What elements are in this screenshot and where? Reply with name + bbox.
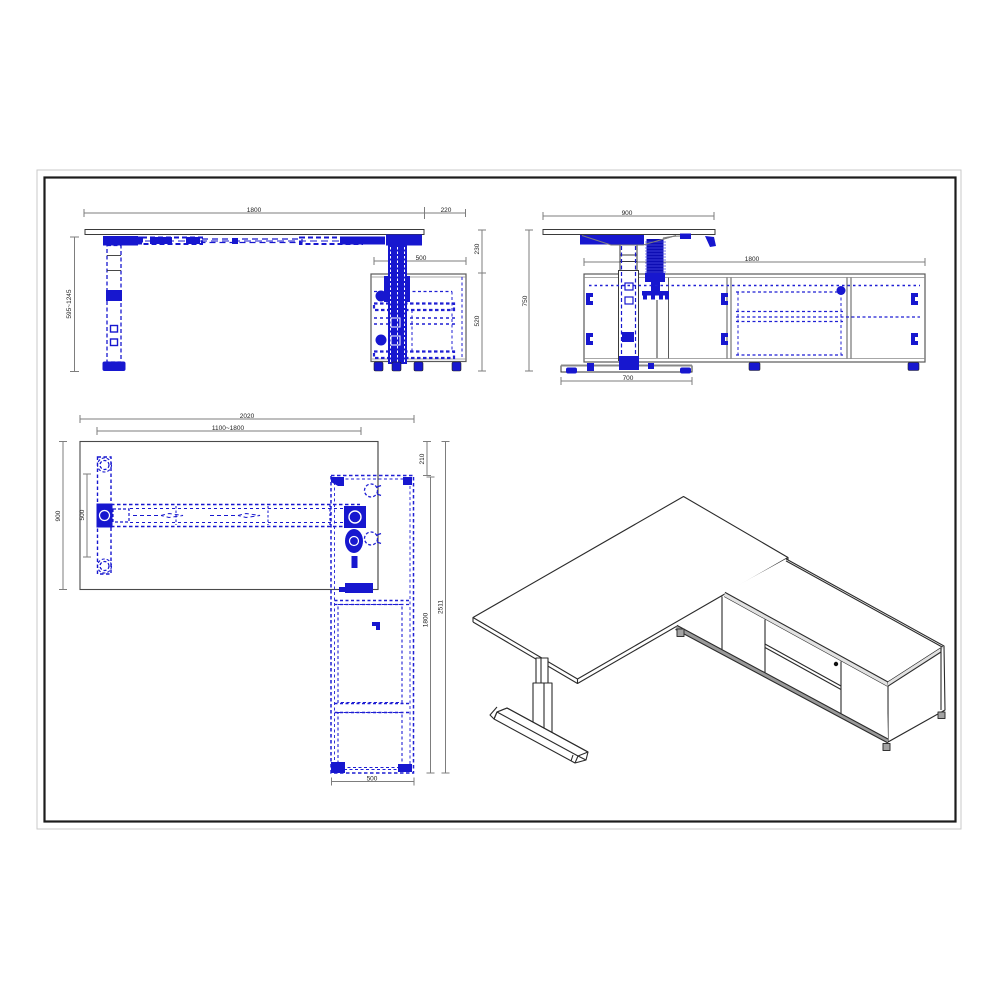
svg-text:1800: 1800 — [423, 612, 430, 627]
svg-text:230: 230 — [474, 243, 481, 254]
svg-text:595~1245: 595~1245 — [66, 289, 73, 318]
svg-text:1100~1800: 1100~1800 — [212, 425, 245, 432]
svg-text:700: 700 — [623, 375, 634, 382]
svg-text:210: 210 — [419, 453, 426, 464]
svg-text:500: 500 — [416, 255, 427, 262]
svg-text:1800: 1800 — [745, 256, 760, 263]
svg-text:900: 900 — [622, 210, 633, 217]
svg-text:750: 750 — [522, 295, 529, 306]
svg-text:2511: 2511 — [438, 600, 445, 614]
svg-text:500: 500 — [79, 509, 86, 520]
svg-text:500: 500 — [367, 776, 378, 783]
svg-text:1800: 1800 — [247, 207, 262, 214]
svg-text:2020: 2020 — [240, 413, 255, 420]
svg-text:520: 520 — [474, 315, 481, 326]
svg-text:220: 220 — [441, 207, 452, 214]
svg-text:900: 900 — [55, 510, 62, 521]
